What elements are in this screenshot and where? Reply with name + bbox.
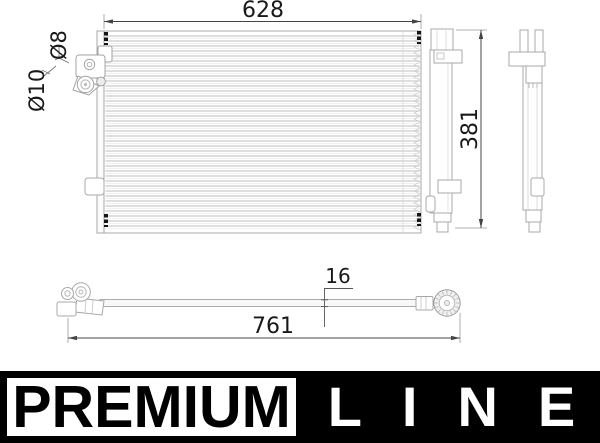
condenser-core: [85, 31, 421, 233]
pipe-assembly: [57, 283, 460, 316]
dimension-pipe-length: 761: [68, 313, 460, 343]
premium-box: PREMIUM: [0, 371, 303, 443]
line-box: LINE: [303, 371, 600, 443]
port-small-callout: Ø8: [47, 30, 71, 63]
pipe-diameter-label: 16: [325, 264, 350, 288]
receiver-drier: [426, 29, 462, 232]
pipe-body: [100, 300, 418, 307]
dimension-pipe-diameter: 16: [321, 264, 353, 327]
left-mounting-bracket: [85, 178, 104, 195]
port-small-label: Ø8: [47, 30, 71, 60]
port-large-label: Ø10: [25, 69, 49, 112]
pipe-right-fitting: [416, 290, 460, 316]
side-profile-view: [509, 30, 545, 232]
technical-drawing: 628 Ø8 Ø10: [0, 0, 600, 371]
drier-bracket-upper: [434, 50, 462, 63]
core-height-label: 381: [458, 108, 483, 150]
premium-label: PREMIUM: [12, 378, 291, 437]
drier-bracket-lower: [438, 180, 461, 193]
dimension-core-width: 628: [104, 0, 421, 29]
premium-line-logo: PREMIUM LINE: [0, 371, 600, 443]
pipe-length-label: 761: [252, 314, 294, 339]
line-label: LINE: [328, 379, 600, 435]
pipe-left-fitting: [57, 283, 104, 316]
core-width-label: 628: [242, 0, 284, 23]
port-large-callout: Ø10: [25, 66, 56, 112]
